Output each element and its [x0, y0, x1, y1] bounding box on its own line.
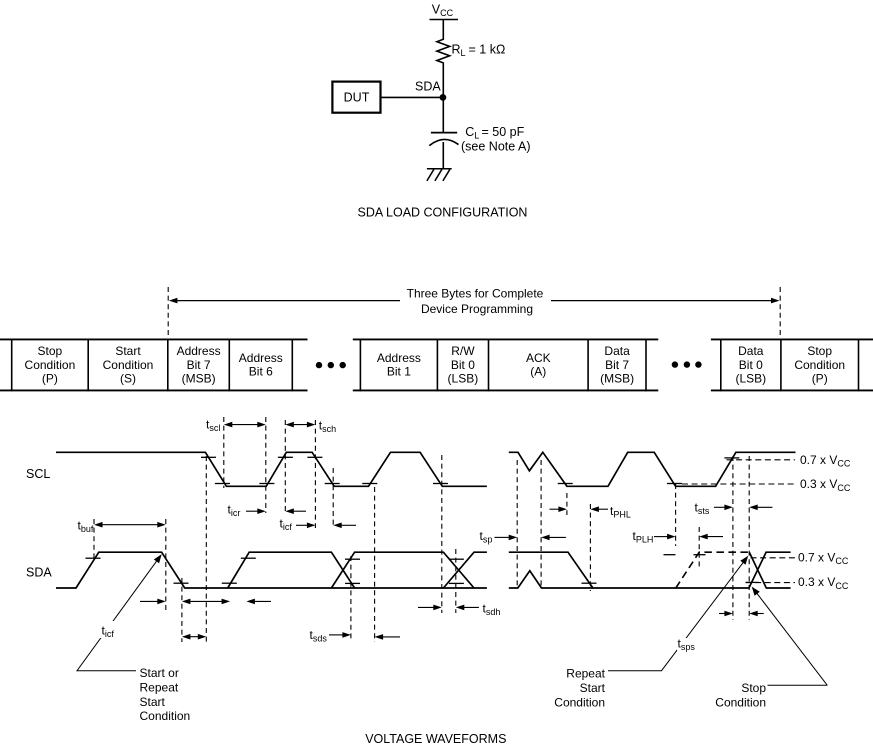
svg-text:Stop: Stop — [38, 344, 63, 358]
svg-text:Repeat: Repeat — [140, 680, 179, 694]
svg-text:= 1 kΩ: = 1 kΩ — [469, 43, 506, 57]
svg-text:(A): (A) — [530, 365, 546, 379]
svg-text:Condition: Condition — [103, 358, 154, 372]
svg-text:(P): (P) — [42, 371, 58, 385]
svg-text:VOLTAGE WAVEFORMS: VOLTAGE WAVEFORMS — [365, 732, 506, 746]
svg-text:SDA: SDA — [415, 80, 441, 94]
svg-text:Condition: Condition — [25, 358, 76, 372]
svg-text:Device Programming: Device Programming — [421, 302, 533, 316]
svg-text:Address: Address — [239, 351, 283, 365]
svg-text:Bit 0: Bit 0 — [451, 358, 475, 372]
svg-text:Bit 6: Bit 6 — [249, 365, 273, 379]
svg-text:R/W: R/W — [451, 344, 475, 358]
svg-text:= 50 pF: = 50 pF — [482, 125, 525, 139]
svg-text:Stop: Stop — [741, 681, 766, 695]
svg-text:Address: Address — [177, 344, 221, 358]
svg-text:Start: Start — [140, 695, 166, 709]
svg-text:Condition: Condition — [715, 696, 766, 710]
svg-text:SDA LOAD CONFIGURATION: SDA LOAD CONFIGURATION — [358, 205, 528, 219]
svg-text:(S): (S) — [120, 371, 136, 385]
svg-text:(LSB): (LSB) — [735, 371, 766, 385]
svg-text:ACK: ACK — [526, 351, 551, 365]
svg-text:(see Note A): (see Note A) — [461, 140, 530, 154]
svg-text:(MSB): (MSB) — [600, 371, 634, 385]
svg-text:Address: Address — [377, 351, 421, 365]
svg-text:Bit 7: Bit 7 — [187, 358, 211, 372]
svg-text:Three Bytes for Complete: Three Bytes for Complete — [407, 287, 544, 301]
svg-text:Condition: Condition — [554, 696, 605, 710]
svg-text:Bit 0: Bit 0 — [739, 358, 763, 372]
svg-text:(LSB): (LSB) — [448, 371, 479, 385]
svg-text:DUT: DUT — [344, 91, 370, 105]
svg-text:Start: Start — [115, 344, 141, 358]
svg-text:Data: Data — [604, 344, 630, 358]
svg-text:Repeat: Repeat — [566, 667, 605, 681]
svg-text:SCL: SCL — [26, 467, 50, 481]
svg-text:Bit 1: Bit 1 — [387, 365, 411, 379]
svg-text:Bit 7: Bit 7 — [605, 358, 629, 372]
svg-text:SDA: SDA — [26, 566, 52, 580]
svg-text:(P): (P) — [812, 371, 828, 385]
svg-text:(MSB): (MSB) — [182, 371, 216, 385]
svg-text:Data: Data — [738, 344, 764, 358]
svg-text:Start or: Start or — [140, 666, 179, 680]
svg-text:Start: Start — [580, 681, 606, 695]
svg-text:Condition: Condition — [794, 358, 845, 372]
svg-text:Stop: Stop — [807, 344, 832, 358]
svg-text:Condition: Condition — [140, 709, 191, 723]
